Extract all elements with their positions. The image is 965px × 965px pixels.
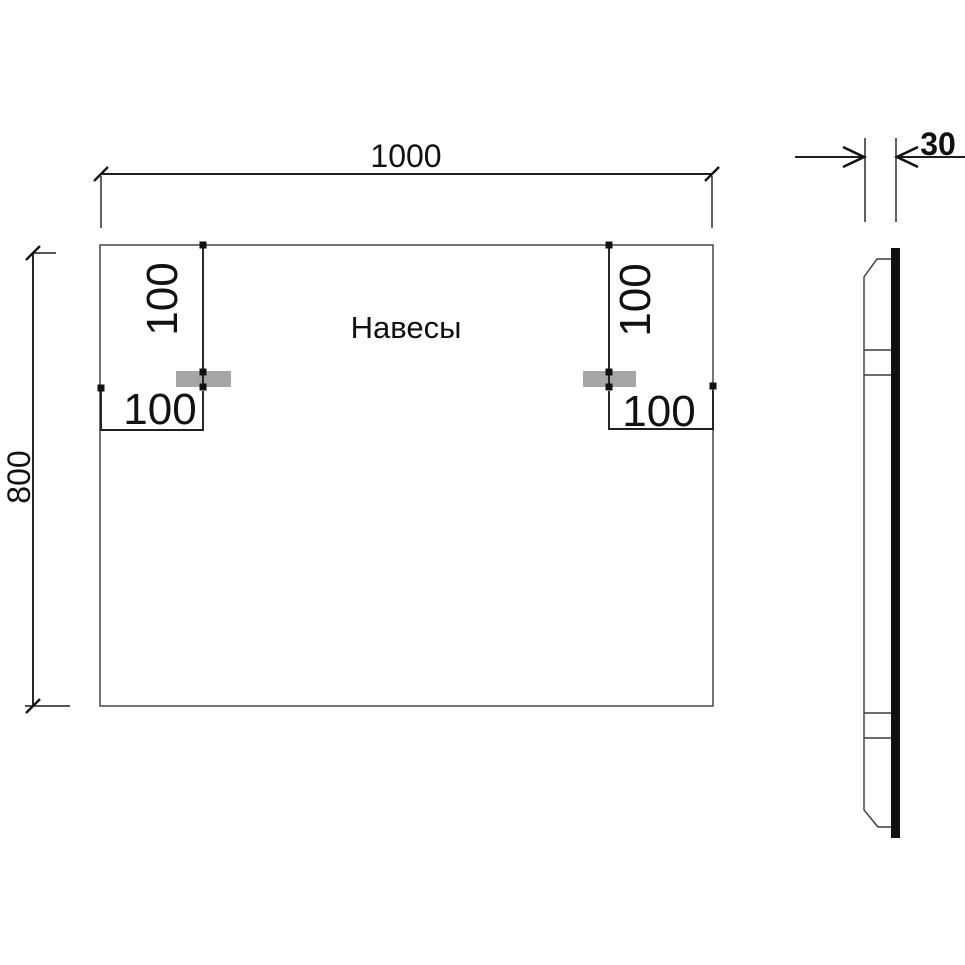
dim-hanger-top-right-value: 100 bbox=[611, 263, 660, 336]
side-view-profile bbox=[864, 259, 891, 827]
dim-square bbox=[606, 242, 613, 249]
dim-hanger-side-right-value: 100 bbox=[622, 387, 695, 436]
dim-overall-width: 1000 bbox=[94, 138, 719, 228]
dim-hanger-side-right: 100 bbox=[609, 383, 717, 437]
side-view bbox=[864, 248, 900, 838]
dim-thickness-value: 30 bbox=[920, 126, 956, 162]
dim-square bbox=[606, 369, 613, 376]
side-view-glass-bar bbox=[891, 248, 900, 838]
drawing-svg: Навесы 1000 800 100 100 bbox=[0, 0, 965, 965]
dim-hanger-top-left-value: 100 bbox=[138, 262, 187, 335]
dim-square bbox=[98, 385, 105, 392]
dim-overall-width-value: 1000 bbox=[370, 138, 441, 174]
dim-hanger-top-right: 100 bbox=[606, 242, 661, 391]
hangers-label: Навесы bbox=[351, 310, 462, 345]
dim-overall-height: 800 bbox=[1, 246, 70, 713]
dim-square bbox=[200, 242, 207, 249]
technical-drawing: Навесы 1000 800 100 100 bbox=[0, 0, 965, 965]
dim-hanger-side-left-value: 100 bbox=[123, 385, 196, 434]
dim-square bbox=[710, 383, 717, 390]
dim-thickness: 30 bbox=[795, 126, 965, 222]
dim-square bbox=[606, 384, 613, 391]
dim-overall-height-value: 800 bbox=[1, 450, 37, 503]
dim-hanger-side-left: 100 bbox=[98, 385, 204, 435]
dim-square bbox=[200, 369, 207, 376]
dim-square bbox=[200, 384, 207, 391]
dim-hanger-top-left: 100 bbox=[138, 242, 207, 391]
